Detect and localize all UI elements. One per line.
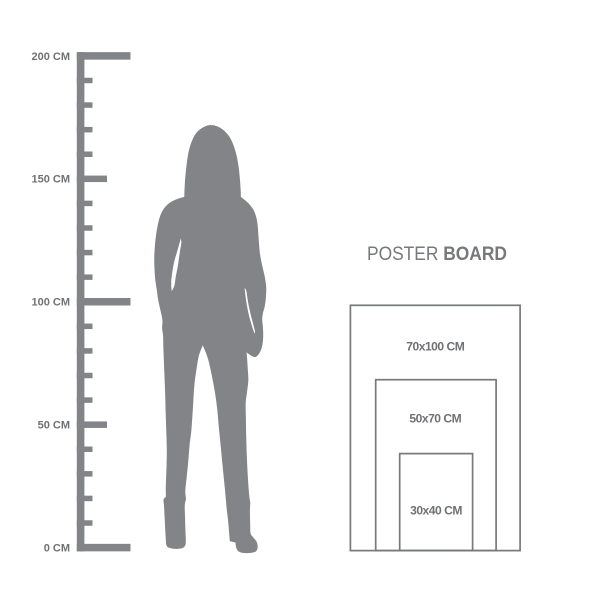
svg-text:100 CM: 100 CM bbox=[31, 297, 70, 309]
svg-text:POSTER BOARD: POSTER BOARD bbox=[367, 242, 507, 264]
svg-text:150 CM: 150 CM bbox=[31, 174, 70, 186]
svg-text:50x70 CM: 50x70 CM bbox=[409, 412, 461, 426]
svg-text:70x100 CM: 70x100 CM bbox=[406, 340, 464, 354]
svg-text:30x40 CM: 30x40 CM bbox=[410, 504, 462, 518]
svg-text:50 CM: 50 CM bbox=[38, 420, 70, 432]
svg-text:0 CM: 0 CM bbox=[44, 543, 70, 555]
svg-text:200 CM: 200 CM bbox=[31, 51, 70, 63]
